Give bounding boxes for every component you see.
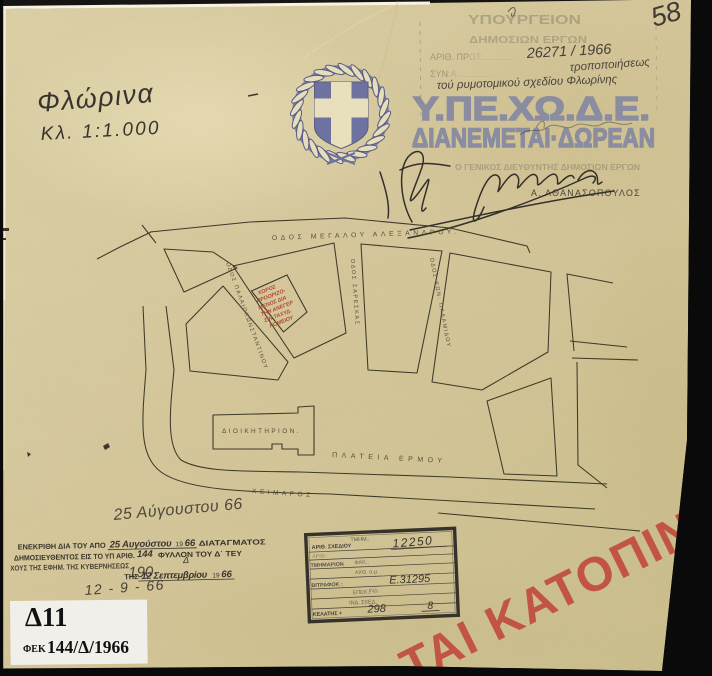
svg-text:ΦΥΛΛΟΝ ΤΟΥ Δ΄ ΤΕΥ: ΦΥΛΛΟΝ ΤΟΥ Δ΄ ΤΕΥ xyxy=(158,549,242,560)
svg-text:66: 66 xyxy=(221,569,233,580)
svg-text:ΦΑΚ.:: ΦΑΚ.: xyxy=(354,560,369,567)
svg-text:8: 8 xyxy=(427,600,434,612)
svg-text:ΑΧΘ. α.μ.: ΑΧΘ. α.μ. xyxy=(355,569,379,576)
svg-text:ΔΙΟΙΚΗΤΗΡΙΟΝ.: ΔΙΟΙΚΗΤΗΡΙΟΝ. xyxy=(222,428,301,435)
svg-text:ΔΙΑΤΑΓΜΑΤΟΣ: ΔΙΑΤΑΓΜΑΤΟΣ xyxy=(199,537,267,547)
svg-text:Δ: Δ xyxy=(182,555,189,565)
svg-text:ΙΝΔ.: ΙΝΔ. xyxy=(369,588,380,594)
svg-text:298: 298 xyxy=(366,603,387,616)
svg-text:ΑΡΙΘ. ΠΡΩΤ..............: ΑΡΙΘ. ΠΡΩΤ.............. xyxy=(430,52,515,62)
svg-text:144/Δ/1966: 144/Δ/1966 xyxy=(47,637,129,657)
svg-text:66: 66 xyxy=(185,538,197,549)
svg-text:Υ.ΠΕ.ΧΩ.Δ.Ε.: Υ.ΠΕ.ΧΩ.Δ.Ε. xyxy=(413,90,650,127)
svg-text:144: 144 xyxy=(137,549,154,560)
svg-text:19: 19 xyxy=(212,572,220,579)
svg-text:ΤΜΗΜ.:: ΤΜΗΜ.: xyxy=(350,537,369,544)
svg-text:19: 19 xyxy=(176,541,184,548)
svg-text:Ε.31295: Ε.31295 xyxy=(389,573,431,587)
svg-text:ΕΝΕΚΡΙΘΗ ΔΙΑ ΤΟΥ ΑΠΟ: ΕΝΕΚΡΙΘΗ ΔΙΑ ΤΟΥ ΑΠΟ xyxy=(18,541,106,552)
svg-text:Ο ΓΕΝΙΚΟΣ ΔΙΕΥΘΥΝΤΗΣ ΔΗΜΟΣΙΩΝ: Ο ΓΕΝΙΚΟΣ ΔΙΕΥΘΥΝΤΗΣ ΔΗΜΟΣΙΩΝ ΕΡΓΩΝ xyxy=(455,163,640,172)
svg-text:ΥΠΟΥΡΓΕΙΟΝ: ΥΠΟΥΡΓΕΙΟΝ xyxy=(468,12,581,27)
svg-text:ΦΕΚ: ΦΕΚ xyxy=(23,644,46,655)
svg-text:Δ11: Δ11 xyxy=(25,602,67,632)
svg-text:ΑΡΙΘ.:: ΑΡΙΘ.: xyxy=(312,553,328,560)
svg-text:Α. ΑΘΑΝΑΣΟΠΟΥΛΟΣ: Α. ΑΘΑΝΑΣΟΠΟΥΛΟΣ xyxy=(531,188,641,198)
svg-text:ΔΙΑΝΕΜΕΤΑΙ·ΔΩΡΕΑΝ: ΔΙΑΝΕΜΕΤΑΙ·ΔΩΡΕΑΝ xyxy=(412,123,655,153)
